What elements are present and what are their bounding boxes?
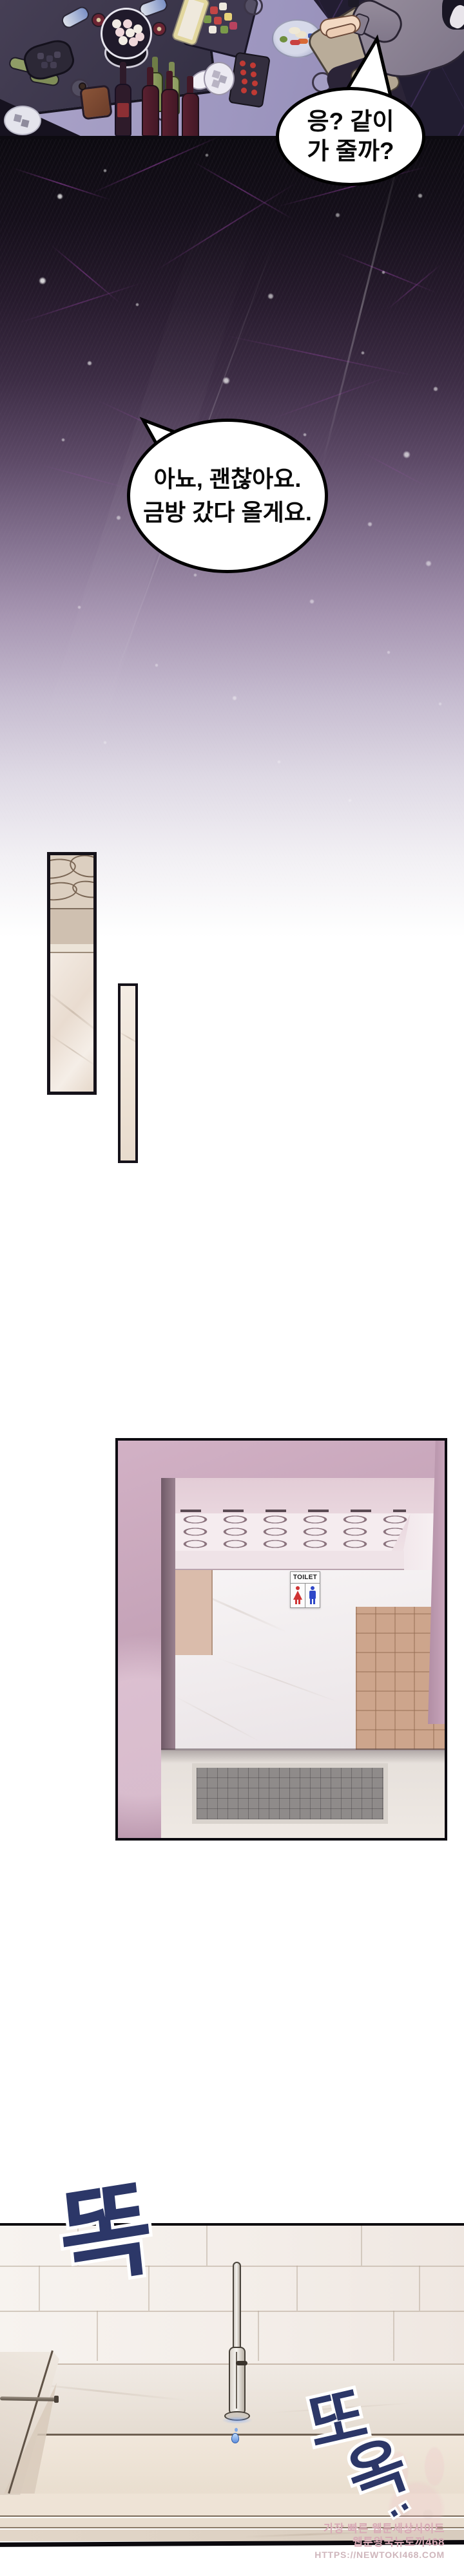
sparkle bbox=[348, 799, 352, 802]
sparkle bbox=[303, 433, 307, 437]
whisky-flask bbox=[79, 84, 113, 120]
food-scrap-broccoli bbox=[280, 36, 287, 43]
mortar-line-v bbox=[361, 2226, 362, 2266]
sfx-drip-large: 똑 똑 bbox=[55, 2181, 157, 2289]
sparkle bbox=[367, 522, 372, 527]
bubble-2-line-1: 아뇨, 괜찮아요. bbox=[154, 462, 302, 496]
sparkle bbox=[135, 303, 139, 307]
sparkle bbox=[387, 650, 391, 654]
pastry-bits bbox=[37, 53, 44, 59]
door-jamb-shadow bbox=[161, 1478, 175, 1750]
sparkle bbox=[309, 599, 314, 604]
sliver-ceiling bbox=[50, 855, 93, 908]
sparkle bbox=[418, 193, 423, 198]
red-wine-bottle bbox=[142, 85, 159, 136]
tan-wall-patch bbox=[175, 1570, 213, 1655]
canape-tray bbox=[228, 52, 271, 108]
watermark-line-3: HTTPS://NEWTOKI468.COM bbox=[314, 2550, 445, 2561]
sparkle bbox=[61, 438, 65, 442]
bubble-1-line-2: 가 줄까? bbox=[307, 137, 394, 166]
sparkle bbox=[403, 451, 411, 459]
watermark-line-1: 가장 빠른 웹툰세상사이트 bbox=[314, 2522, 445, 2535]
marble-vein bbox=[48, 1034, 97, 1067]
glass bbox=[244, 0, 263, 15]
wrist-watch bbox=[348, 0, 359, 7]
woman-icon bbox=[291, 1584, 305, 1607]
sparkle bbox=[361, 351, 365, 355]
mortar-line-v bbox=[258, 2311, 259, 2361]
macarons bbox=[112, 19, 121, 28]
sparkle bbox=[57, 193, 63, 200]
sfx-fill: 똑 bbox=[54, 2171, 159, 2298]
ceiling-cove bbox=[71, 879, 97, 900]
corridor-sliver-small bbox=[118, 983, 138, 1163]
marble-vein bbox=[218, 1658, 340, 1703]
ceiling-vent-ovals bbox=[175, 1513, 411, 1551]
wine-label bbox=[117, 103, 129, 117]
sparkle bbox=[438, 702, 442, 706]
toilet-sign-label: TOILET bbox=[291, 1572, 320, 1584]
sparkle bbox=[382, 270, 385, 274]
food-scrap-red bbox=[290, 40, 300, 45]
sparkle bbox=[39, 277, 46, 285]
mortar-line-v bbox=[419, 2266, 420, 2311]
white-dish bbox=[4, 106, 41, 135]
canape-skewers bbox=[240, 61, 246, 66]
water-drop bbox=[231, 2433, 239, 2443]
wine-bottle-top bbox=[152, 22, 166, 36]
sparkle bbox=[232, 696, 237, 701]
bubble-1-line-1: 응? 같이 bbox=[307, 107, 394, 137]
ceiling-slot-row bbox=[180, 1510, 406, 1512]
speech-bubble-2: 아뇨, 괜찮아요. 금방 갔다 올게요. bbox=[127, 419, 328, 573]
sparkle bbox=[277, 760, 281, 764]
faucet-glow bbox=[222, 2416, 253, 2424]
sparkle bbox=[222, 377, 230, 384]
mortar-line-h bbox=[0, 2311, 464, 2312]
ice-bucket bbox=[204, 62, 235, 95]
faucet-pipe bbox=[233, 2262, 241, 2351]
food-scrap bbox=[289, 27, 300, 34]
sparkle bbox=[433, 386, 438, 392]
corridor-sliver-large bbox=[47, 852, 97, 1095]
mortar-line-v bbox=[97, 2311, 98, 2361]
sparkle bbox=[103, 169, 107, 173]
panel-bathroom-entrance: TOILET bbox=[115, 1438, 447, 1841]
speech-bubble-1: 응? 같이 가 줄까? bbox=[276, 87, 425, 186]
mortar-line-v bbox=[296, 2266, 298, 2311]
sparkle bbox=[193, 573, 197, 577]
marble-vein bbox=[118, 1031, 138, 1045]
site-watermark: 가장 빠른 웹툰세상사이트 웹툰왕국뉴토끼468 HTTPS://NEWTOKI… bbox=[314, 2522, 445, 2561]
ceiling-fascia bbox=[175, 1551, 404, 1570]
webtoon-page: 응? 같이 가 줄까? 아뇨, 괜찮아요. 금방 갔다 올게요. bbox=[0, 0, 464, 2576]
toilet-sign: TOILET bbox=[290, 1571, 320, 1608]
bubble-2-line-2: 금방 갔다 올게요. bbox=[143, 496, 312, 529]
sparkle bbox=[155, 663, 159, 667]
toilet-sign-pictograms bbox=[291, 1584, 320, 1607]
sliver-marble bbox=[50, 953, 93, 1092]
mortar-line-v bbox=[39, 2266, 40, 2311]
sparkle bbox=[205, 153, 209, 157]
marble-vein bbox=[47, 989, 97, 1034]
red-wine-bottle bbox=[182, 93, 199, 136]
sparkle bbox=[87, 361, 92, 366]
mortar-line-v bbox=[393, 2311, 394, 2361]
faucet-body bbox=[229, 2347, 246, 2415]
sparkle bbox=[116, 515, 121, 520]
man-icon bbox=[305, 1584, 320, 1607]
red-wine-bottle bbox=[161, 89, 179, 136]
sliver-wall-band bbox=[50, 908, 93, 944]
floor-shadow bbox=[161, 1750, 445, 1763]
ceiling-cove bbox=[68, 852, 97, 880]
mortar-line-v bbox=[206, 2226, 208, 2266]
sparkle bbox=[267, 293, 274, 299]
watermark-line-2: 웹툰왕국뉴토끼468 bbox=[314, 2535, 445, 2549]
grab-bar-bracket bbox=[54, 2396, 59, 2403]
water-drop-small bbox=[235, 2428, 238, 2432]
sliver-trim bbox=[50, 944, 93, 953]
sparkle bbox=[335, 213, 340, 218]
bathroom-interior: TOILET bbox=[161, 1478, 445, 1838]
overflow-slot bbox=[236, 2361, 247, 2365]
mosaic-floor-mat bbox=[192, 1763, 388, 1824]
sparkle bbox=[77, 605, 81, 609]
sparkle bbox=[425, 560, 432, 567]
sparkle bbox=[103, 741, 107, 744]
macaron-tray bbox=[101, 8, 152, 59]
marble-vein bbox=[174, 1696, 260, 1742]
flask-cap bbox=[79, 82, 86, 90]
